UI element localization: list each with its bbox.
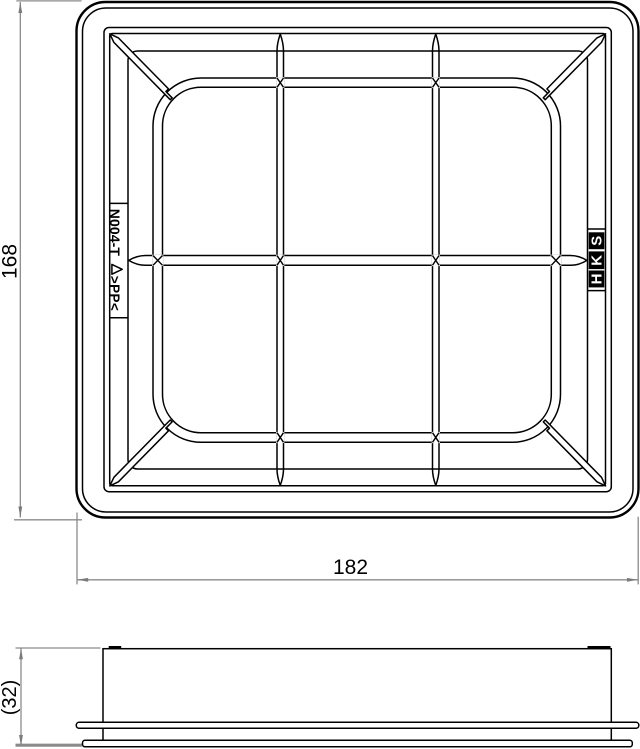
svg-text:>PP<: >PP<	[107, 276, 122, 311]
svg-text:(32): (32)	[0, 680, 21, 716]
svg-text:H: H	[589, 274, 606, 285]
svg-text:168: 168	[0, 244, 22, 279]
svg-text:S: S	[589, 236, 606, 246]
svg-text:K: K	[589, 255, 606, 266]
svg-text:N004-T: N004-T	[107, 209, 123, 257]
svg-text:182: 182	[333, 556, 368, 579]
